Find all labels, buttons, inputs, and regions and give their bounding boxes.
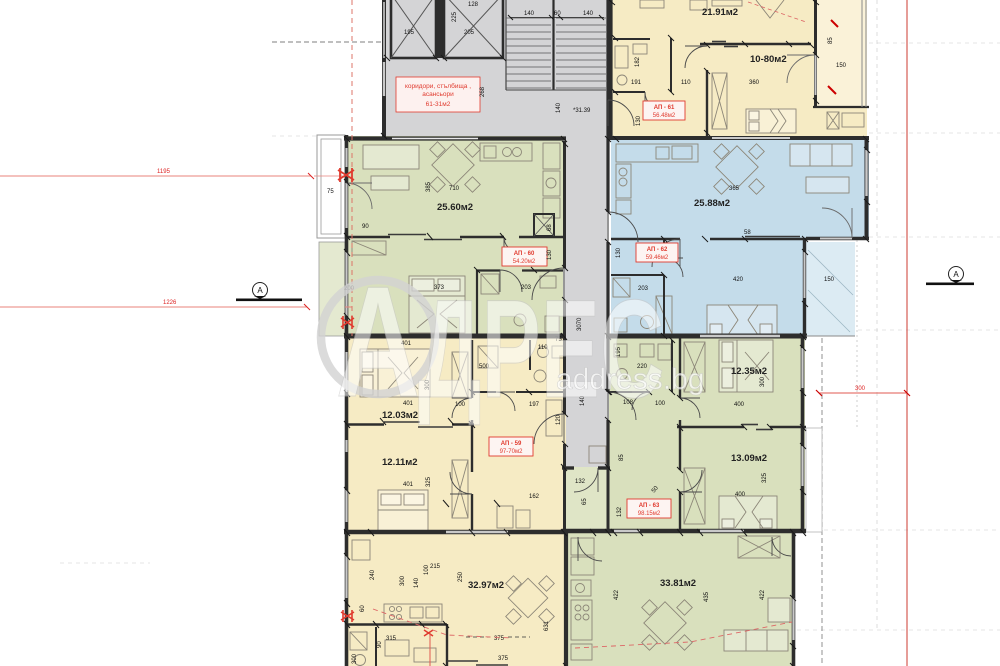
- svg-text:300: 300: [352, 653, 358, 664]
- svg-text:25.88м2: 25.88м2: [694, 198, 730, 209]
- svg-text:85: 85: [619, 454, 625, 461]
- svg-text:150: 150: [824, 277, 835, 283]
- svg-text:268: 268: [480, 86, 486, 97]
- svg-text:400: 400: [735, 492, 746, 498]
- svg-text:162: 162: [529, 494, 540, 500]
- svg-text:60: 60: [554, 11, 561, 17]
- svg-text:195: 195: [404, 30, 415, 36]
- svg-text:АП - 60: АП - 60: [514, 251, 535, 257]
- svg-text:401: 401: [403, 482, 414, 488]
- svg-text:21.91м2: 21.91м2: [702, 7, 738, 18]
- svg-text:54.20м2: 54.20м2: [513, 259, 536, 265]
- svg-text:A: A: [953, 270, 959, 279]
- svg-text:33.81м2: 33.81м2: [660, 578, 696, 589]
- svg-text:25.60м2: 25.60м2: [437, 202, 473, 213]
- svg-text:130: 130: [636, 115, 642, 126]
- svg-text:65: 65: [582, 498, 588, 505]
- svg-text:АП - 63: АП - 63: [639, 503, 660, 509]
- svg-text:A: A: [257, 286, 263, 295]
- svg-text:422: 422: [614, 589, 620, 600]
- svg-text:97-70м2: 97-70м2: [500, 449, 523, 455]
- svg-text:56.48м2: 56.48м2: [653, 113, 676, 119]
- svg-text:325: 325: [426, 476, 432, 487]
- svg-text:365: 365: [729, 186, 740, 192]
- svg-text:225: 225: [452, 11, 458, 22]
- svg-text:205: 205: [464, 30, 475, 36]
- svg-text:110: 110: [681, 80, 691, 86]
- svg-text:132: 132: [575, 479, 586, 485]
- svg-text:60: 60: [360, 605, 366, 612]
- svg-text:59.46м2: 59.46м2: [646, 255, 669, 261]
- svg-text:435: 435: [704, 591, 710, 602]
- svg-text:10-80м2: 10-80м2: [750, 54, 787, 65]
- svg-text:400: 400: [734, 402, 745, 408]
- svg-text:address.bg: address.bg: [556, 363, 704, 396]
- svg-text:300: 300: [400, 575, 406, 586]
- svg-text:132: 132: [617, 506, 623, 517]
- svg-text:68: 68: [547, 224, 553, 231]
- svg-text:422: 422: [760, 589, 766, 600]
- svg-text:98.15м2: 98.15м2: [638, 511, 661, 517]
- svg-text:АП - 59: АП - 59: [501, 441, 522, 447]
- svg-text:631: 631: [544, 620, 550, 631]
- svg-text:13.09м2: 13.09м2: [731, 453, 767, 464]
- svg-text:100: 100: [424, 564, 430, 575]
- svg-text:58: 58: [744, 230, 751, 236]
- svg-text:коридори, стълбища ,: коридори, стълбища ,: [405, 82, 471, 90]
- svg-text:375: 375: [498, 656, 509, 662]
- svg-text:128: 128: [468, 2, 479, 8]
- svg-text:*31.39: *31.39: [573, 108, 591, 114]
- svg-text:90: 90: [377, 641, 383, 648]
- svg-text:61-31м2: 61-31м2: [426, 101, 451, 108]
- svg-text:140: 140: [583, 11, 594, 17]
- svg-text:300: 300: [760, 376, 766, 387]
- svg-text:140: 140: [556, 102, 562, 113]
- svg-text:360: 360: [749, 80, 760, 86]
- svg-text:150: 150: [836, 63, 847, 69]
- svg-text:90: 90: [362, 224, 369, 230]
- svg-text:420: 420: [733, 277, 744, 283]
- svg-text:12.11м2: 12.11м2: [382, 457, 418, 468]
- svg-text:385: 385: [426, 181, 432, 192]
- svg-text:А: А: [336, 254, 420, 430]
- svg-text:240: 240: [370, 569, 376, 580]
- svg-text:325: 325: [762, 472, 768, 483]
- svg-text:191: 191: [631, 80, 642, 86]
- svg-text:75: 75: [327, 189, 334, 195]
- svg-text:ДРЕС: ДРЕС: [418, 271, 664, 428]
- svg-text:1226: 1226: [163, 300, 177, 306]
- svg-text:710: 710: [449, 186, 460, 192]
- svg-text:130: 130: [616, 247, 622, 258]
- svg-text:85: 85: [828, 37, 834, 44]
- svg-text:315: 315: [386, 636, 397, 642]
- svg-text:130: 130: [547, 249, 553, 260]
- svg-text:АП - 61: АП - 61: [654, 105, 675, 111]
- svg-text:1195: 1195: [157, 169, 171, 175]
- svg-text:асансьори: асансьори: [422, 91, 454, 98]
- svg-text:215: 215: [430, 564, 441, 570]
- svg-text:АП - 62: АП - 62: [647, 247, 668, 253]
- svg-text:182: 182: [635, 56, 641, 67]
- svg-text:140: 140: [414, 577, 420, 588]
- svg-text:32.97м2: 32.97м2: [468, 580, 504, 591]
- svg-text:300: 300: [855, 386, 866, 392]
- svg-text:140: 140: [524, 11, 535, 17]
- svg-text:12.35м2: 12.35м2: [731, 366, 767, 377]
- svg-text:250: 250: [458, 571, 464, 582]
